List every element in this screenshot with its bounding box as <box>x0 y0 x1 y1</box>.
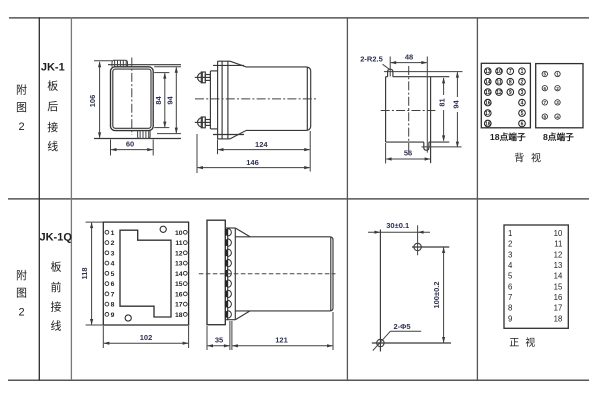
svg-text:7: 7 <box>509 69 512 75</box>
svg-text:12: 12 <box>554 250 563 259</box>
svg-text:JK-1Q: JK-1Q <box>39 232 72 244</box>
svg-text:13: 13 <box>485 69 491 75</box>
svg-text:5: 5 <box>111 271 115 278</box>
svg-text:接: 接 <box>47 121 58 134</box>
svg-text:14: 14 <box>485 80 491 86</box>
svg-text:15: 15 <box>175 281 183 288</box>
svg-text:18点端子: 18点端子 <box>490 131 526 142</box>
svg-text:背视: 背视 <box>514 151 548 164</box>
svg-text:9: 9 <box>111 312 115 319</box>
svg-text:30±0.1: 30±0.1 <box>386 221 409 230</box>
svg-text:8: 8 <box>509 80 512 86</box>
svg-text:12: 12 <box>496 90 502 96</box>
svg-text:1: 1 <box>508 229 512 238</box>
svg-text:15: 15 <box>554 282 563 291</box>
svg-text:7: 7 <box>544 100 547 105</box>
svg-text:12: 12 <box>175 250 183 257</box>
svg-text:56: 56 <box>404 149 412 158</box>
svg-text:线: 线 <box>47 139 58 153</box>
svg-text:1: 1 <box>111 230 115 237</box>
svg-text:附: 附 <box>16 268 27 282</box>
svg-text:6: 6 <box>544 86 547 91</box>
svg-text:2: 2 <box>18 307 24 319</box>
svg-text:8: 8 <box>544 114 547 119</box>
svg-text:接: 接 <box>51 301 62 314</box>
svg-text:3: 3 <box>556 100 559 105</box>
svg-text:124: 124 <box>255 140 268 149</box>
svg-text:18: 18 <box>485 121 491 127</box>
svg-text:图: 图 <box>16 287 27 300</box>
svg-text:146: 146 <box>246 158 259 167</box>
svg-text:附: 附 <box>16 83 27 97</box>
svg-text:18: 18 <box>175 312 183 319</box>
svg-text:4: 4 <box>556 114 559 119</box>
svg-text:JK-1: JK-1 <box>41 62 65 74</box>
svg-text:14: 14 <box>175 271 183 278</box>
svg-text:16: 16 <box>554 293 563 302</box>
svg-text:17: 17 <box>175 302 183 309</box>
svg-text:2-R2.5: 2-R2.5 <box>360 55 383 64</box>
svg-text:5: 5 <box>544 72 547 77</box>
svg-text:16: 16 <box>485 100 491 106</box>
svg-text:1: 1 <box>521 69 524 75</box>
svg-text:板: 板 <box>51 260 62 274</box>
svg-text:图: 图 <box>16 101 27 114</box>
svg-text:后: 后 <box>47 100 58 113</box>
svg-text:94: 94 <box>165 96 174 105</box>
svg-text:2: 2 <box>508 240 512 249</box>
svg-text:正视: 正视 <box>509 336 541 349</box>
svg-text:17: 17 <box>554 304 563 313</box>
svg-text:5: 5 <box>521 111 524 117</box>
svg-text:3: 3 <box>521 90 524 96</box>
svg-text:3: 3 <box>508 250 512 259</box>
svg-text:2: 2 <box>521 80 524 86</box>
svg-text:16: 16 <box>175 292 183 299</box>
svg-text:2: 2 <box>18 121 24 133</box>
svg-text:8点端子: 8点端子 <box>543 131 574 142</box>
svg-text:10: 10 <box>175 230 183 237</box>
svg-text:前: 前 <box>51 280 62 294</box>
svg-text:84: 84 <box>154 96 163 105</box>
svg-text:10: 10 <box>554 229 563 238</box>
svg-text:106: 106 <box>88 95 97 108</box>
svg-text:100±0.2: 100±0.2 <box>432 281 441 308</box>
svg-text:94: 94 <box>451 100 460 109</box>
svg-text:4: 4 <box>508 261 513 270</box>
svg-text:9: 9 <box>508 314 512 323</box>
svg-text:4: 4 <box>521 100 524 106</box>
svg-text:13: 13 <box>554 261 563 270</box>
svg-text:2-Φ5: 2-Φ5 <box>394 322 411 331</box>
svg-text:板: 板 <box>47 79 58 93</box>
svg-text:9: 9 <box>509 90 512 96</box>
svg-text:17: 17 <box>485 111 491 117</box>
svg-text:11: 11 <box>175 240 182 247</box>
svg-text:6: 6 <box>521 121 524 127</box>
svg-text:6: 6 <box>111 281 115 288</box>
svg-text:11: 11 <box>496 80 502 86</box>
svg-text:81: 81 <box>438 98 447 106</box>
svg-text:1: 1 <box>556 72 559 77</box>
svg-text:35: 35 <box>215 336 223 345</box>
svg-text:60: 60 <box>126 139 134 148</box>
svg-text:121: 121 <box>275 336 288 345</box>
svg-text:6: 6 <box>508 282 512 291</box>
svg-text:2: 2 <box>111 240 115 247</box>
svg-text:48: 48 <box>405 52 413 61</box>
svg-text:5: 5 <box>508 272 513 281</box>
svg-text:18: 18 <box>554 314 563 323</box>
svg-text:7: 7 <box>508 293 512 302</box>
svg-text:11: 11 <box>554 240 562 249</box>
svg-text:8: 8 <box>508 304 512 313</box>
svg-text:线: 线 <box>51 319 62 333</box>
svg-text:7: 7 <box>111 292 115 299</box>
svg-text:2: 2 <box>556 86 559 91</box>
svg-text:15: 15 <box>485 90 491 96</box>
svg-text:3: 3 <box>111 250 115 257</box>
svg-text:102: 102 <box>140 333 153 342</box>
svg-text:118: 118 <box>80 267 89 279</box>
svg-text:8: 8 <box>111 302 115 309</box>
svg-text:10: 10 <box>496 69 502 75</box>
svg-text:14: 14 <box>554 272 563 281</box>
svg-text:4: 4 <box>111 261 115 268</box>
svg-text:13: 13 <box>175 261 183 268</box>
